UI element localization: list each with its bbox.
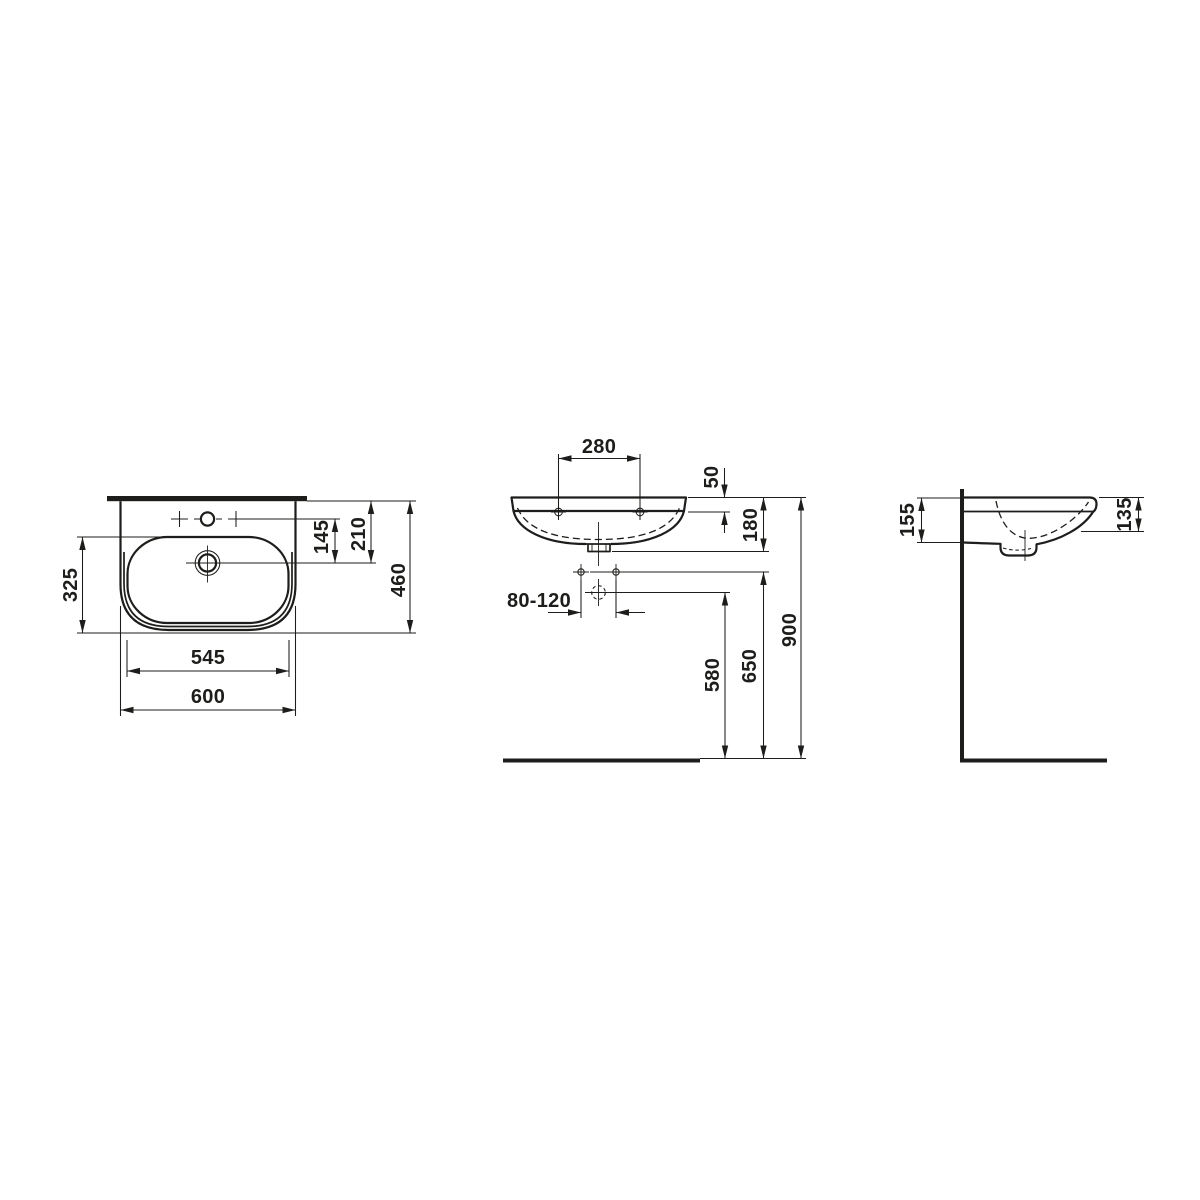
dim-label-280: 280 — [582, 436, 616, 458]
dim-label-145: 145 — [311, 520, 333, 554]
dim-label-545: 545 — [191, 647, 225, 669]
dim-label-600: 600 — [191, 686, 225, 708]
dim-label-460: 460 — [388, 563, 410, 597]
dim-rim-to-bowl-bottom: 180 — [740, 498, 767, 552]
plan-back-edge — [107, 496, 307, 501]
plan-view: 325 145 210 460 545 — [60, 496, 416, 716]
front-rim — [512, 498, 687, 512]
dim-rim-to-tap-holes: 50 — [701, 466, 728, 533]
dim-floor-to-waste: 580 — [702, 593, 728, 759]
dim-label-210: 210 — [348, 517, 370, 551]
side-bowl-hidden-line — [996, 501, 1089, 538]
washbasin-dimension-drawing: 325 145 210 460 545 — [0, 0, 1200, 1200]
dim-label-580: 580 — [702, 658, 724, 692]
dim-label-80-120: 80-120 — [507, 590, 571, 612]
dim-bowl-depth: 325 — [60, 537, 86, 633]
dim-front-height: 135 — [1114, 497, 1142, 531]
plan-bowl-outline — [128, 537, 289, 623]
dim-label-325: 325 — [60, 568, 82, 602]
dim-floor-to-rim: 900 — [779, 498, 804, 759]
dim-back-to-drain: 210 — [348, 501, 374, 563]
plan-basin-outline — [121, 501, 296, 630]
dim-label-135: 135 — [1114, 497, 1136, 531]
front-view: 280 50 180 80-120 580 — [503, 436, 806, 761]
ext-rear-height — [917, 498, 962, 543]
dim-label-155: 155 — [897, 503, 919, 537]
dim-label-180: 180 — [740, 508, 762, 542]
dim-floor-to-fixing-holes: 650 — [739, 572, 767, 759]
dim-label-650: 650 — [739, 649, 761, 683]
dim-tap-to-drain: 145 — [311, 519, 338, 563]
front-waste-outlet — [585, 522, 614, 566]
dim-tap-hole-spacing: 280 — [559, 436, 641, 462]
side-view: 155 135 — [897, 489, 1144, 761]
side-basin-profile — [964, 498, 1097, 556]
wall-and-floor-line — [962, 489, 1107, 761]
dim-rear-height: 155 — [897, 498, 925, 543]
dim-fixing-hole-range: 80-120 — [507, 590, 645, 616]
dim-bowl-width: 545 — [127, 647, 289, 674]
side-waste-hidden-line — [1003, 548, 1031, 550]
dim-overall-width: 600 — [121, 686, 296, 713]
dim-label-50: 50 — [701, 466, 723, 489]
dim-overall-depth: 460 — [388, 501, 413, 633]
dim-label-900: 900 — [779, 613, 801, 647]
drawing-page: 325 145 210 460 545 — [0, 0, 1200, 1200]
